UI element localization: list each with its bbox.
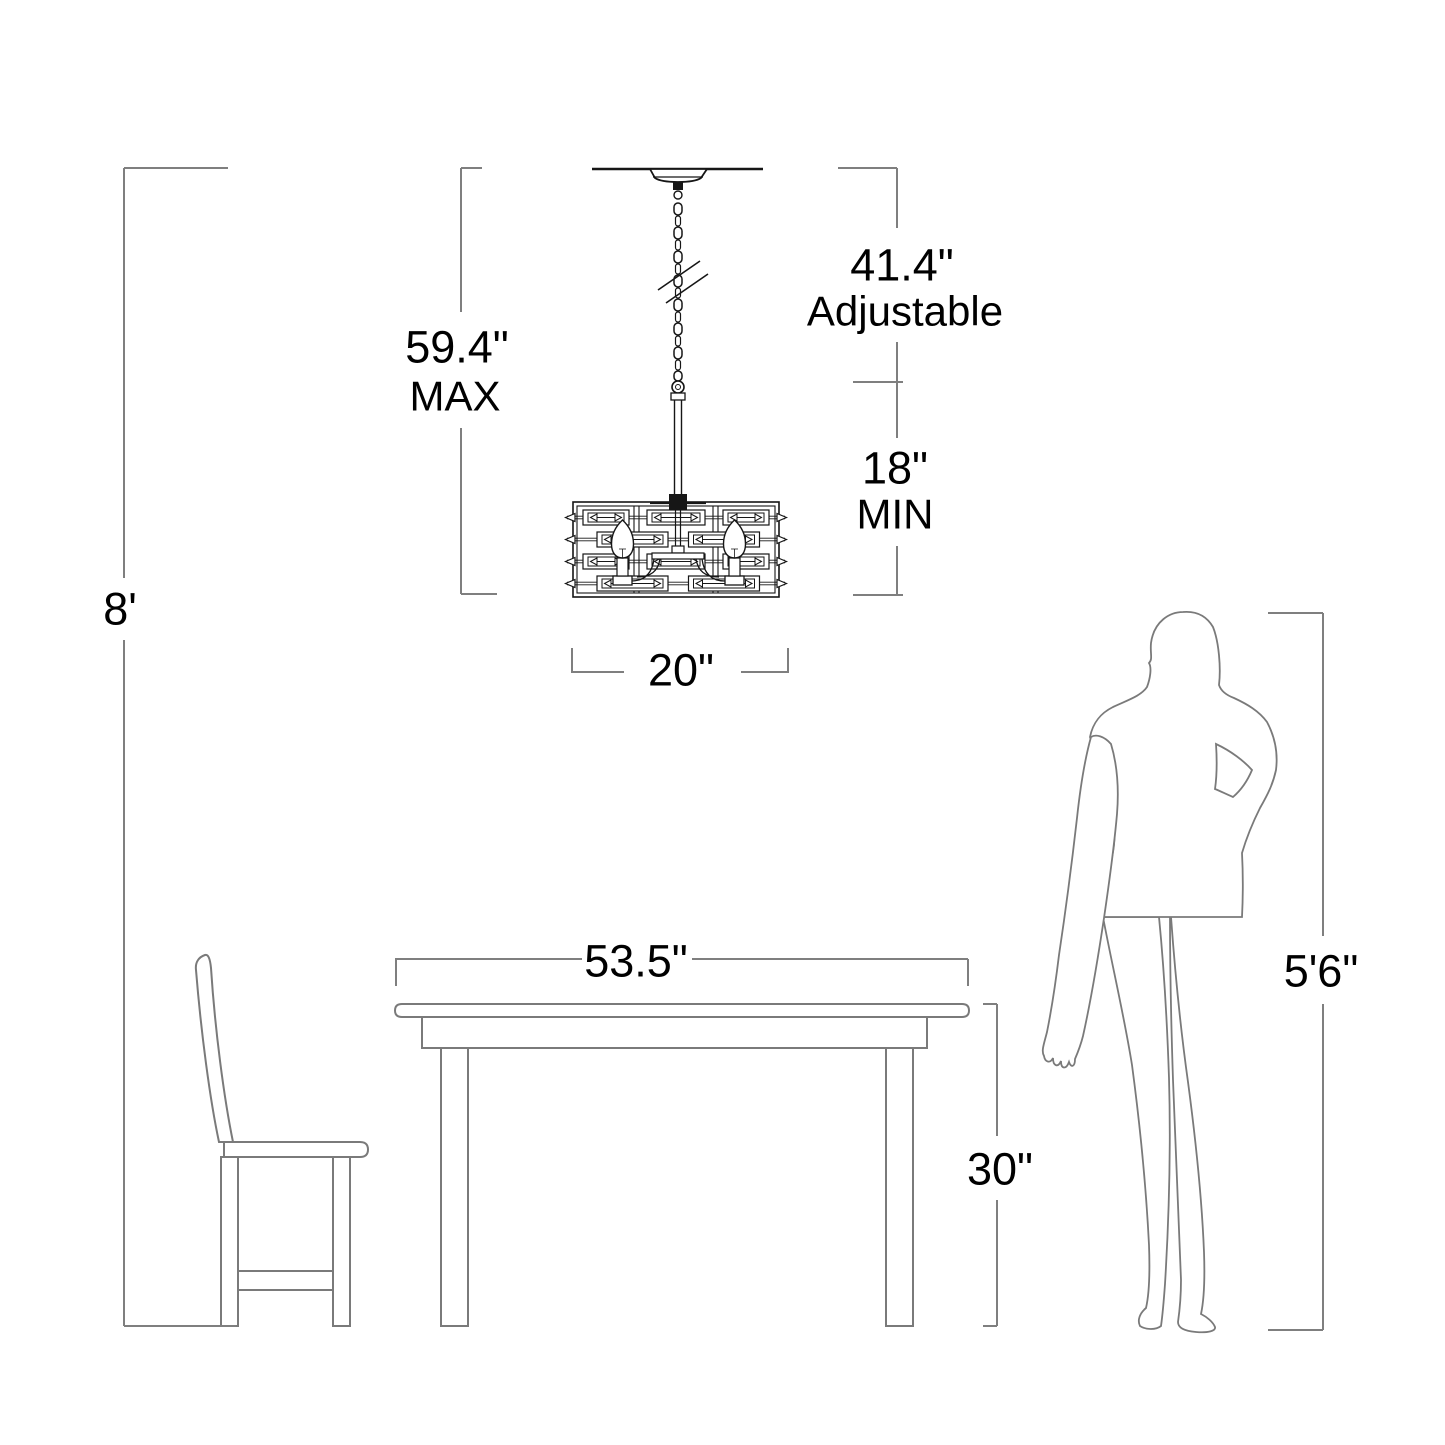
min-drop-word-label: MIN — [857, 491, 934, 538]
chain-connector-ball — [672, 381, 684, 393]
candle-right — [724, 520, 746, 585]
downrod — [650, 393, 706, 510]
chain-break-mark — [658, 261, 708, 303]
chair-back-leg — [221, 1157, 238, 1326]
dimension-diagram-page: 8' 59.4" MAX 41.4" Adjustable 18" MIN 20… — [0, 0, 1445, 1445]
chair-stretcher — [238, 1271, 333, 1290]
woman-leg-front — [1103, 917, 1170, 1329]
woman-leg-back — [1170, 917, 1215, 1332]
max-drop-value-label: 59.4" — [405, 322, 509, 373]
canopy — [650, 169, 707, 199]
table-left-leg — [441, 1048, 468, 1326]
table-height-label: 30" — [967, 1144, 1033, 1195]
center-arm-bar — [652, 553, 704, 559]
chair-seat — [224, 1142, 368, 1157]
chandelier — [566, 169, 787, 597]
crystal-shade — [566, 502, 787, 597]
woman-hanging-arm — [1043, 736, 1118, 1068]
table-width-label: 53.5" — [584, 936, 688, 987]
woman-body — [1090, 612, 1277, 917]
person-height-label: 5'6" — [1284, 946, 1359, 997]
hanging-chain — [658, 203, 708, 393]
chair-back-post — [196, 955, 233, 1142]
max-drop-word-label: MAX — [409, 373, 500, 420]
dim-ceiling-height — [124, 168, 236, 1326]
table-right-leg — [886, 1048, 913, 1326]
chair-front-leg — [333, 1157, 350, 1326]
table-apron — [422, 1017, 927, 1048]
dining-table — [395, 1004, 969, 1326]
adjustable-value-label: 41.4" — [850, 240, 954, 291]
woman-silhouette — [1043, 612, 1277, 1332]
adjustable-word-label: Adjustable — [807, 288, 1003, 335]
table-top — [395, 1004, 969, 1017]
ceiling-height-label: 8' — [103, 584, 137, 635]
dimension-diagram: 8' 59.4" MAX 41.4" Adjustable 18" MIN 20… — [0, 0, 1445, 1445]
fixture-width-label: 20" — [648, 645, 714, 696]
candle-left — [612, 520, 634, 585]
min-drop-value-label: 18" — [862, 443, 928, 494]
dining-chair — [196, 955, 368, 1326]
